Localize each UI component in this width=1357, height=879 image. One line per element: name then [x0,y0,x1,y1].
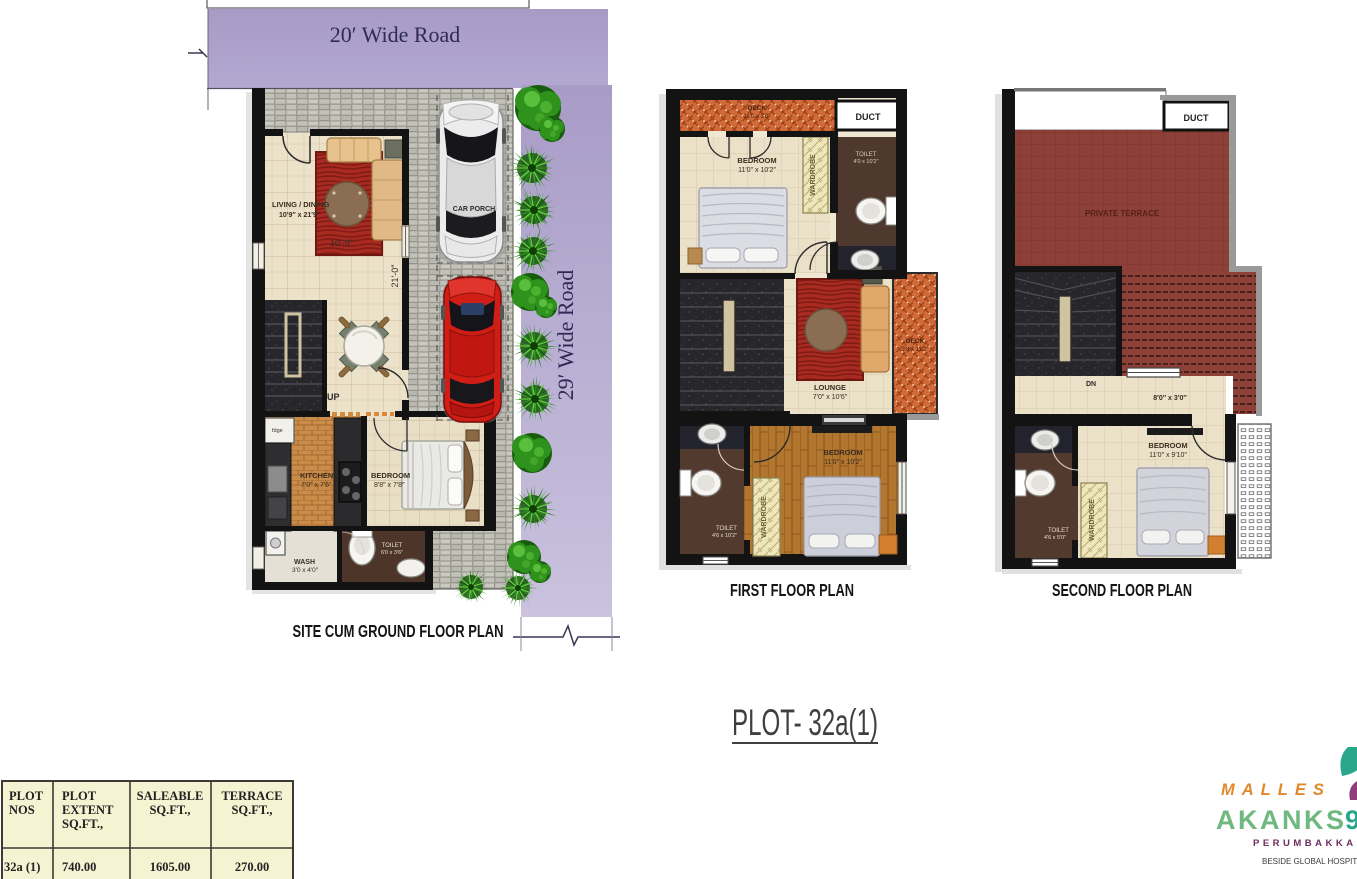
svg-text:LOUNGE: LOUNGE [814,383,846,392]
svg-text:DECK: DECK [748,105,767,112]
svg-text:3′0 x 4′0″: 3′0 x 4′0″ [292,567,319,574]
svg-text:PERUMBAKKAM: PERUMBAKKAM [1253,838,1357,849]
svg-text:TOILET: TOILET [382,543,403,549]
svg-text:MALLES: MALLES [1221,781,1331,799]
svg-text:PLOT: PLOT [9,789,44,803]
svg-text:SQ.FT.,: SQ.FT., [62,817,103,831]
svg-text:WARDROBE: WARDROBE [1089,499,1096,541]
svg-text:SECOND FLOOR PLAN: SECOND FLOOR PLAN [1052,580,1192,600]
svg-text:AKANKS: AKANKS [1216,805,1347,835]
svg-text:SQ.FT.,: SQ.FT., [149,803,190,817]
svg-text:740.00: 740.00 [62,860,96,874]
svg-text:4′6 x 10′2″: 4′6 x 10′2″ [712,533,737,539]
svg-text:SQ.FT.,: SQ.FT., [231,803,272,817]
svg-text:PLOT- 32a(1): PLOT- 32a(1) [732,702,878,743]
svg-text:BEDROOM: BEDROOM [1148,441,1187,450]
svg-text:21′-0″: 21′-0″ [390,264,400,288]
svg-text:EXTENT: EXTENT [62,803,114,817]
svg-text:NOS: NOS [9,803,35,817]
svg-text:11′0″ x 10′2″: 11′0″ x 10′2″ [824,459,862,466]
svg-text:UP: UP [743,391,755,401]
svg-text:PLOT: PLOT [62,789,97,803]
svg-text:32a (1): 32a (1) [4,860,40,874]
svg-text:7′0″ x 10′6″: 7′0″ x 10′6″ [813,394,848,401]
svg-text:BEDROOM: BEDROOM [371,471,410,480]
svg-text:10′9″ x 21′9″: 10′9″ x 21′9″ [279,212,321,219]
svg-text:DN: DN [1086,381,1096,388]
svg-text:4′0 x 10′2″: 4′0 x 10′2″ [853,159,878,165]
svg-text:FIRST FLOOR PLAN: FIRST FLOOR PLAN [730,580,854,600]
svg-text:10′-9″: 10′-9″ [330,238,354,248]
svg-text:11′0 x 3′0″: 11′0 x 3′0″ [744,114,772,120]
svg-text:BESIDE GLOBAL HOSPITAL: BESIDE GLOBAL HOSPITAL [1262,857,1357,866]
svg-text:UP: UP [327,392,340,402]
svg-text:DUCT: DUCT [1184,113,1209,123]
svg-text:WARDROBE: WARDROBE [761,496,768,538]
svg-text:TERRACE: TERRACE [221,789,282,803]
svg-text:SITE CUM GROUND FLOOR PLAN: SITE CUM GROUND FLOOR PLAN [293,621,504,641]
svg-text:11′0″ x 10′2″: 11′0″ x 10′2″ [738,167,776,174]
svg-text:DUCT: DUCT [856,112,881,122]
svg-text:20′ Wide Road: 20′ Wide Road [330,22,461,47]
svg-text:1605.00: 1605.00 [150,860,191,874]
svg-text:fdge: fdge [272,428,283,434]
svg-text:7′0″ x 7′6″: 7′0″ x 7′6″ [301,482,332,489]
svg-text:CAR PORCH: CAR PORCH [453,206,495,213]
svg-text:BEDROOM: BEDROOM [823,448,862,457]
svg-text:WARDROBE: WARDROBE [810,154,817,196]
svg-text:9: 9 [1345,805,1357,835]
svg-text:TOILET: TOILET [716,526,737,532]
svg-text:DECK: DECK [906,338,925,345]
svg-text:29′ Wide Road: 29′ Wide Road [553,270,578,401]
svg-text:SALEABLE: SALEABLE [137,789,204,803]
svg-text:11′0″ x 9′10″: 11′0″ x 9′10″ [1149,452,1187,459]
svg-text:8′8″ x 7′8″: 8′8″ x 7′8″ [374,482,405,489]
svg-text:8′0″ x 3′0″: 8′0″ x 3′0″ [1153,395,1187,402]
svg-text:WASH: WASH [294,559,315,566]
svg-text:LIVING / DINING: LIVING / DINING [272,200,330,209]
svg-text:3′8 x 11′2″: 3′8 x 11′2″ [902,347,930,353]
svg-text:TOILET: TOILET [856,152,877,158]
svg-text:4′6 x 5′0″: 4′6 x 5′0″ [1044,535,1066,541]
svg-text:270.00: 270.00 [235,860,269,874]
svg-text:TOILET: TOILET [1048,528,1069,534]
svg-text:PRIVATE TERRACE: PRIVATE TERRACE [1085,209,1160,218]
svg-text:6′0 x 3′6″: 6′0 x 3′6″ [381,550,403,556]
svg-text:KITCHEN: KITCHEN [300,471,333,480]
